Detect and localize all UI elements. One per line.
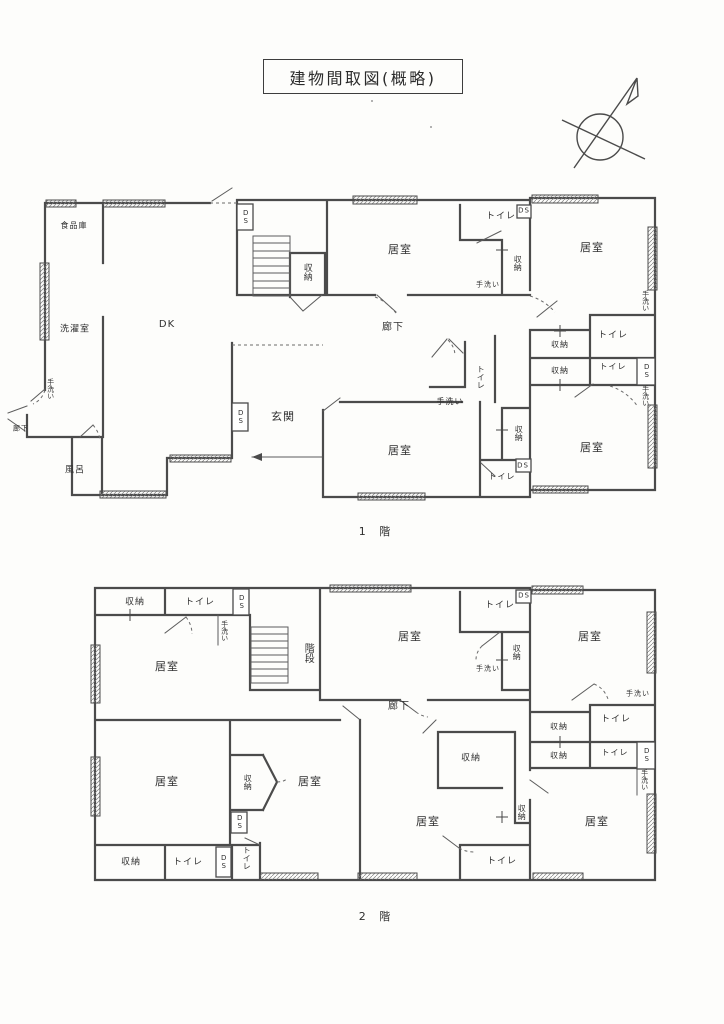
floor1-staircase [253,236,290,296]
label-ds-top: DS [241,209,248,225]
label-handwash-top-right: 手洗い [476,281,500,288]
room-label-pantry: 食品庫 [61,222,88,230]
floor1-caption: 1 階 [359,526,396,538]
room-label-bottom-right: 居室 [580,442,604,454]
label-ds-top-left-f2: DS [237,594,244,610]
label-closet-right-row2: 収納 [551,367,569,375]
label-closet-top-left-f2: 収納 [125,598,145,607]
floor2-caption: 2 階 [359,911,396,923]
label-toilet-bottom-center-f2: トイレ [487,857,517,866]
label-closet-top-right-f2: 収納 [512,644,520,660]
room-label-entrance: 玄関 [271,411,295,423]
label-stairs-f2: 階段 [302,643,313,663]
label-ds-right-row2-f2: DS [642,747,649,763]
label-closet-pentagon-f2: 収納 [243,774,251,790]
label-toilet-top-left-f2: トイレ [185,598,215,607]
room-label-laundry: 洗濯室 [60,325,90,334]
floorplan-drawing [0,0,724,1024]
label-closet-bc-top-f2: 収納 [461,754,481,763]
label-handwash-right-upper-f2: 手洗い [626,690,650,697]
label-handwash-left: 手洗い [46,379,53,400]
room-label-bottom-center-f2: 居室 [416,816,440,828]
label-closet-right-row2-f2: 収納 [550,752,568,760]
label-corridor-left: 廊下 [13,425,29,432]
label-ds-entrance: DS [236,409,243,425]
label-closet-top-right: 収納 [513,255,521,271]
label-ds-mid-f2: DS [235,814,242,830]
label-closet-right-row1-f2: 収納 [550,723,568,731]
room-label-bottom-midleft-f2: 居室 [298,776,322,788]
room-label-dk: DK [159,320,175,331]
label-handwash-right-lower-f2: 手洗い [640,770,647,791]
label-toilet-bottom-strip-f2: トイレ [173,858,203,867]
label-closet-stairs: 収納 [301,263,310,281]
room-label-bottom-left-f2: 居室 [155,776,179,788]
label-toilet-right-row1-f2: トイレ [601,715,631,724]
label-closet-mid: 収納 [514,425,522,441]
label-handwash-top-left-f2: 手洗い [220,621,227,642]
label-handwash-top-right-f2: 手洗い [476,665,500,672]
floor2-staircase [251,627,288,683]
label-toilet-bottom-strip2-f2: トイレ [242,846,250,870]
room-label-bath: 風呂 [65,466,85,475]
label-ds-top-right: DS [518,207,530,214]
label-ds-bottom-strip-f2: DS [219,854,226,870]
room-label-bottom-right-f2: 居室 [585,816,609,828]
drawing-title: 建物間取図(概略) [263,59,463,94]
label-toilet-top-right: トイレ [486,212,516,221]
label-closet-right-row1: 収納 [551,341,569,349]
label-handwash-right-upper: 手洗い [641,291,648,312]
label-ds-top-right-f2: DS [518,592,530,599]
north-compass-icon [562,78,645,168]
label-handwash-center: 手洗い [437,398,464,406]
room-label-top-right: 居室 [580,242,604,254]
label-toilet-right-row2-f2: トイレ [602,749,629,757]
room-label-top-center: 居室 [388,244,412,256]
label-toilet-top-right-f2: トイレ [485,601,515,610]
scan-smudges [371,100,432,128]
label-closet-bc-right-f2: 収納 [517,804,525,820]
floor2-plan [91,585,656,880]
room-label-top-left-f2: 居室 [155,661,179,673]
floor2-windows [91,585,656,880]
label-ds-bottom: DS [517,462,529,469]
label-toilet-right-row1: トイレ [598,331,628,340]
room-label-bottom-center: 居室 [388,445,412,457]
label-toilet-bottom: トイレ [489,473,516,481]
label-toilet-right-row2: トイレ [600,363,627,371]
label-closet-bottom-strip-f2: 収納 [121,858,141,867]
label-handwash-right-lower: 手洗い [641,386,648,407]
label-toilet-center: トイレ [476,365,484,389]
room-label-top-right-f2: 居室 [578,631,602,643]
scanned-floorplan-page: 建物間取図(概略) 食品庫 洗濯室 DK 手洗い 廊下 風呂 DS 収納 居室 … [0,0,724,1024]
label-corridor-f2: 廊下 [388,702,410,713]
label-ds-right-row2: DS [642,363,649,379]
label-corridor: 廊下 [382,323,404,334]
room-label-top-center-f2: 居室 [398,631,422,643]
